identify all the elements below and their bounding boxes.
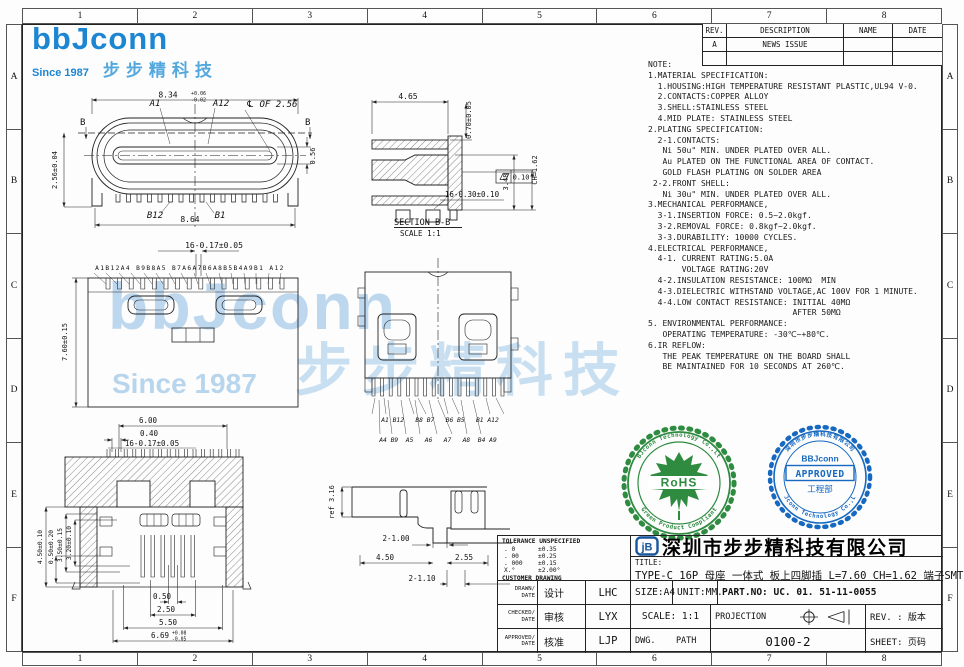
tolerance-val: ±0.15 (538, 560, 557, 567)
sign-row-drawn: DRAWN/ DATE 设计 LHC (498, 581, 631, 605)
dim-side-450: 4.50 (376, 553, 395, 562)
dim-footprint-b050: 0.50 (153, 592, 172, 601)
section-view: 4.65 0.70±0.05 CH=1.62 3.48 0.10 16-0.30… (372, 92, 539, 238)
top-view: 16-0.17±0.05 A1B12A4 B9B8A5 B7A6A7B6A8B5… (61, 241, 298, 407)
mid-view-pin-row-lower: A4 B9 A5 A6 A7 A8 B4 A9 (378, 437, 497, 444)
dim-side-2x100: 2-1.00 (382, 534, 410, 543)
sign-en-label: APPROVED/ DATE (498, 629, 538, 653)
part-no-field: PART.NO: UC. 01. 51-11-0055 (718, 581, 943, 604)
mid-view-pin-row-upper: A1 B12 B8 B7 B6 B5 B1 A12 (380, 417, 499, 424)
pin-label-b12: B12 (147, 211, 163, 221)
section-mark-b-right: B (305, 118, 310, 128)
rev-field: REV. : 版本 (866, 605, 943, 628)
dim-footprint-b550: 5.50 (159, 618, 178, 627)
dwg-path-field: DWG. PATH (631, 629, 711, 653)
scale-field: SCALE: 1:1 (631, 605, 711, 628)
engineering-drawing-sheet: bbJconn 步步精科技 Since 1987 12345678 123456… (0, 0, 964, 667)
section-scale: SCALE 1:1 (400, 229, 441, 238)
tolerance-val: ±0.25 (538, 553, 557, 560)
front-view: 8.34 +0.06 -0.02 A1 A12 ℄ OF 2.56 B B 2.… (51, 91, 317, 229)
dim-front-width-top: 8.34 (158, 91, 177, 100)
sign-initials: LJP (586, 629, 630, 653)
dwg-sheet-row: DWG. PATH 0100-2 SHEET: 页码 (631, 629, 943, 653)
jb-logo-icon: jB (635, 536, 659, 556)
scale-projection-rev-row: SCALE: 1:1 PROJECTION REV. : 版本 (631, 605, 943, 629)
dim-side-ref316: ref 3.16 (328, 485, 336, 519)
tolerance-key: . 0 (504, 546, 538, 553)
title-label: TITLE: (635, 558, 943, 567)
dim-footprint-b669-tol-minus: -0.05 (172, 637, 187, 643)
dim-footprint-350: 3.50±0.15 (57, 528, 64, 562)
dim-section-348: 3.48 (502, 174, 510, 191)
dim-section-ch: CH=1.62 (531, 155, 539, 185)
sign-cn-label: 审核 (538, 605, 586, 628)
projection-label: PROJECTION (715, 612, 766, 622)
top-view-pin-row: A1B12A4 B9B8A5 B7A6A7B6A8B5B4A9B1 A12 (95, 265, 285, 272)
side-footprint-view: ref 3.16 2-1.00 4.50 2.55 2-1.10 (328, 485, 512, 587)
pin-label-b1: B1 (215, 211, 226, 221)
dim-section-070: 0.70±0.05 (465, 101, 473, 139)
sign-initials: LYX (586, 605, 630, 628)
tolerance-header: TOLERANCE UNSPECIFIED (502, 538, 630, 545)
dim-footprint-600: 6.00 (139, 416, 158, 425)
dim-section-pins: 16-0.30±0.10 (445, 190, 500, 199)
company-name: 深圳市步步精科技有限公司 (662, 533, 908, 560)
footprint-view: 6.00 0.40 16-0.17±0.05 4.50±0.10 0.50±0.… (37, 416, 251, 643)
dim-footprint-pitch: 16-0.17±0.05 (125, 439, 179, 448)
sign-initials: LHC (586, 581, 630, 604)
pin-label-a1: A1 (149, 99, 161, 109)
sign-row-approved: APPROVED/ DATE 核准 LJP (498, 629, 631, 653)
tolerance-key: . 000 (504, 560, 538, 567)
dim-front-height-left: 2.56±0.04 (51, 151, 59, 189)
size-field: SIZE:A4 (631, 581, 673, 604)
dim-front-width-top-tol-minus: -0.02 (191, 98, 206, 104)
dim-footprint-b669: 6.69 (151, 631, 169, 640)
size-unit-part-row: SIZE:A4 UNIT:MM. PART.NO: UC. 01. 51-11-… (631, 581, 943, 605)
title-block: TOLERANCE UNSPECIFIED . 0±0.35 . 00±0.25… (497, 535, 942, 652)
tolerance-val: ±2.00° (538, 567, 560, 574)
tolerance-key: X.° (504, 567, 538, 574)
approved-brand-text: BBJconn (801, 454, 838, 464)
unit-field: UNIT:MM. (673, 581, 718, 604)
dim-section-width: 4.65 (398, 92, 417, 101)
rohs-label: RoHS (661, 476, 698, 490)
sign-cn-label: 设计 (538, 581, 586, 604)
tolerance-key: . 00 (504, 553, 538, 560)
dim-front-tongue: 0.56 (309, 148, 317, 165)
dim-footprint-b669-tol-plus: +0.08 (172, 631, 187, 637)
dim-footprint-050: 0.50±0.20 (48, 530, 55, 564)
bottom-pin-view: A1 B12 B8 B7 B6 B5 B1 A12 A4 B9 A5 A6 A7… (358, 258, 518, 444)
dim-footprint-b250: 2.50 (157, 605, 176, 614)
approved-label: APPROVED (796, 469, 845, 480)
dim-footprint-040: 0.40 (140, 429, 159, 438)
dim-footprint-320: 3.20±0.10 (66, 526, 73, 560)
section-label: SECTION B-B (394, 218, 450, 228)
section-mark-b-left: B (80, 118, 85, 128)
dim-side-2x110: 2-1.10 (408, 574, 436, 583)
dim-top-height: 7.60±0.15 (61, 323, 69, 361)
dim-footprint-450: 4.50±0.10 (37, 530, 44, 564)
tolerance-val: ±0.35 (538, 546, 557, 553)
svg-text:BBJconn Technology Co.,Ltd: BBJconn Technology Co.,Ltd (0, 0, 722, 460)
dim-front-width-top-tol-plus: +0.06 (191, 91, 206, 97)
approved-dept-text: 工程部 (807, 484, 833, 495)
projection-field: PROJECTION (711, 605, 866, 628)
rohs-ring-top-text: BBJconn Technology Co.,Ltd (0, 0, 722, 460)
sign-en-label: CHECKED/ DATE (498, 605, 538, 628)
dim-side-255: 2.55 (455, 553, 473, 562)
pin-label-a12: A12 (212, 99, 229, 109)
drawing-number: 0100-2 (711, 629, 866, 653)
svg-text:jB: jB (641, 542, 653, 554)
projection-symbol-icon (797, 608, 859, 626)
tolerance-box: TOLERANCE UNSPECIFIED . 0±0.35 . 00±0.25… (498, 536, 631, 581)
title-cell: TITLE: TYPE-C 16P 母座 一体式 板上四脚插 L=7.60 CH… (631, 557, 943, 581)
company-name-cell: jB 深圳市步步精科技有限公司 (631, 536, 943, 557)
sheet-field: SHEET: 页码 (866, 629, 943, 653)
sign-cn-label: 核准 (538, 629, 586, 653)
centerline-callout: ℄ OF 2.56 (246, 100, 297, 110)
dim-front-width-bottom: 8.64 (180, 215, 199, 224)
sign-row-checked: CHECKED/ DATE 审核 LYX (498, 605, 631, 629)
sign-en-label: DRAWN/ DATE (498, 581, 538, 604)
dim-top-pitch: 16-0.17±0.05 (185, 241, 243, 250)
flatness-value: 0.10 (513, 174, 530, 182)
